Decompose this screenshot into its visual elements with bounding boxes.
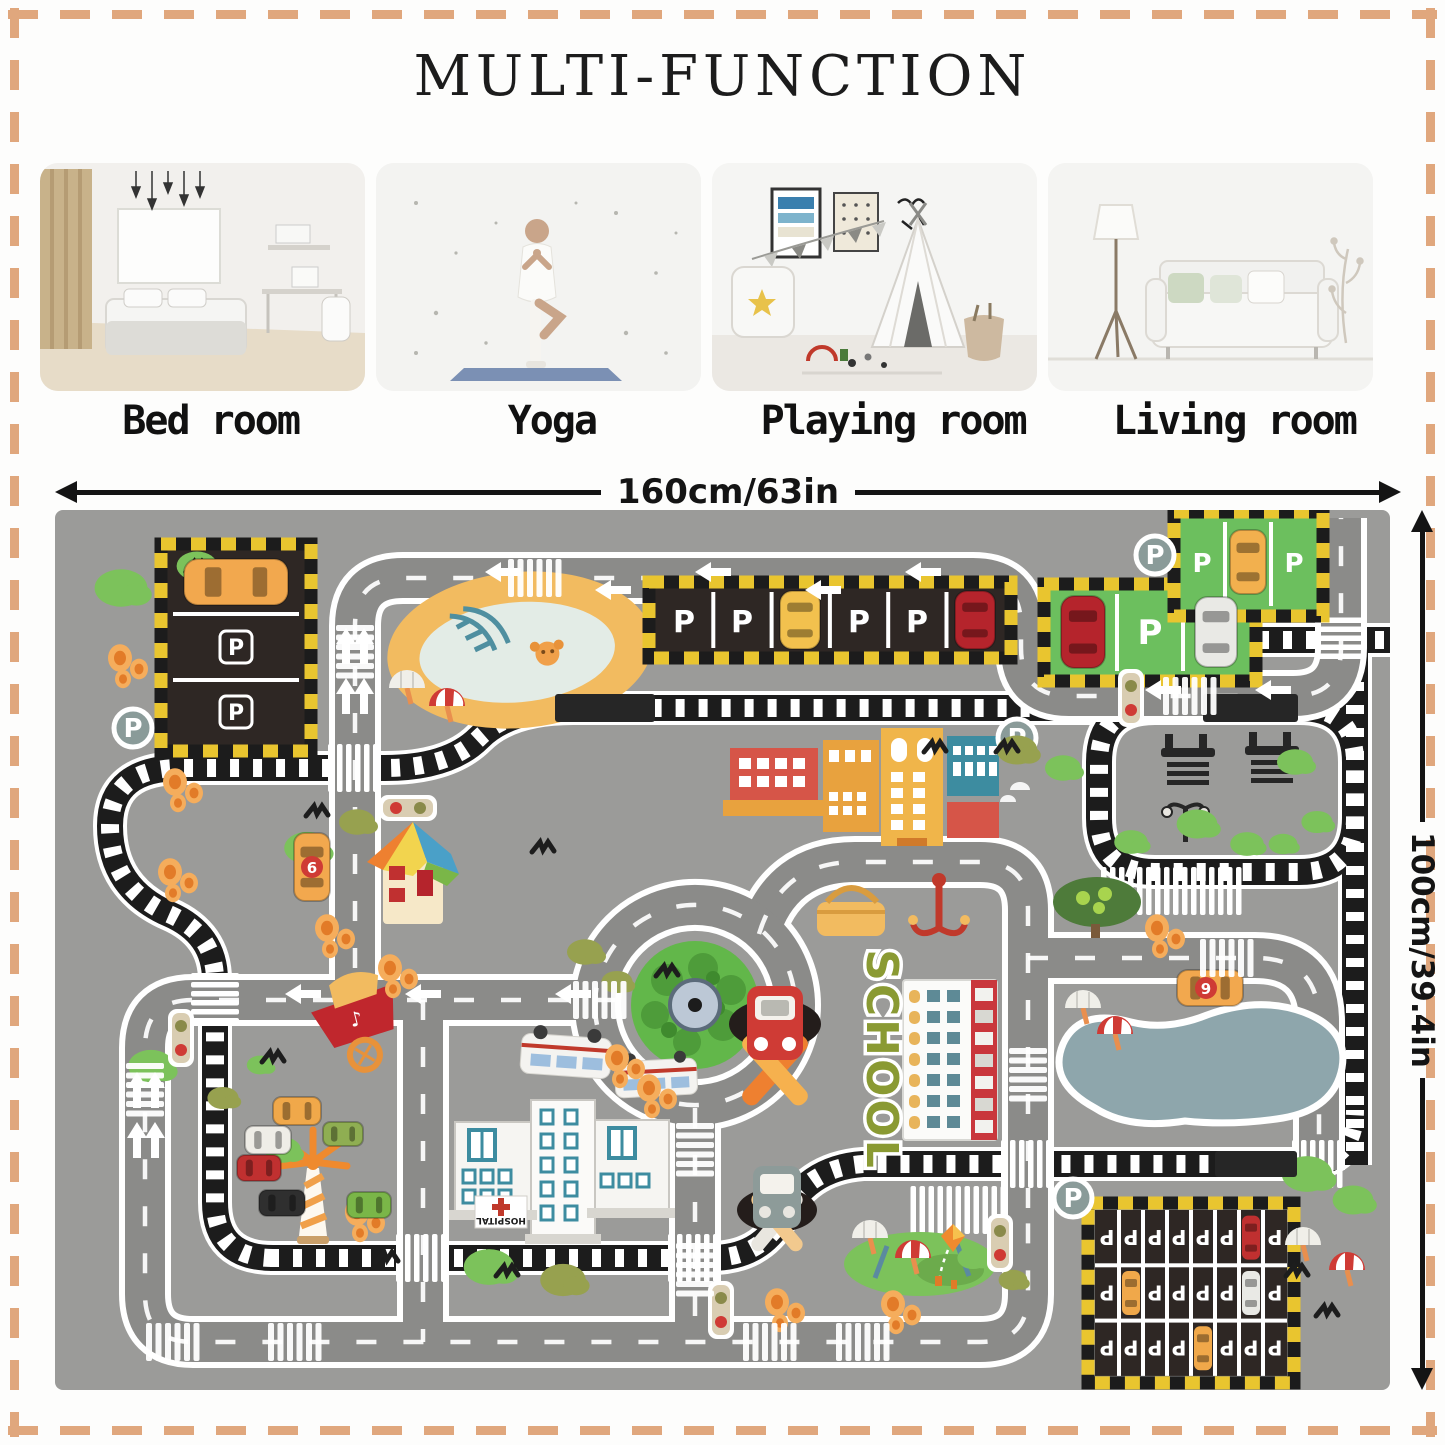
svg-text:P: P (1268, 1336, 1283, 1360)
svg-text:P: P (1148, 1280, 1163, 1304)
width-value: 160cm/63in (617, 472, 839, 512)
svg-text:P: P (1145, 541, 1164, 571)
photo-playing-room (712, 163, 1037, 391)
svg-text:P: P (1100, 1280, 1115, 1304)
room-labels: Bed room Yoga Playing room Living room (40, 398, 1405, 444)
playing-room-scene (712, 163, 1037, 391)
svg-text:P: P (1172, 1225, 1187, 1249)
dimension-height: 100cm/39.4in (1401, 510, 1443, 1390)
svg-text:P: P (1124, 1225, 1139, 1249)
yoga-mat (450, 368, 622, 381)
svg-text:P: P (1063, 1184, 1082, 1214)
label-livingroom: Living room (1064, 398, 1405, 444)
roundabout (631, 941, 759, 1069)
svg-text:P: P (1124, 1336, 1139, 1360)
frame-dash-left (10, 8, 19, 1437)
svg-text:P: P (1196, 1225, 1211, 1249)
svg-text:P: P (1220, 1336, 1235, 1360)
toy-car (780, 591, 820, 649)
svg-text:P: P (1100, 1225, 1115, 1249)
train-car (1215, 1151, 1297, 1177)
svg-text:P: P (1284, 549, 1303, 579)
parking-garage: PPPPPPPPPPPPPPPPPPPPPPPP (1088, 1203, 1294, 1383)
room-photos (40, 163, 1405, 391)
height-value: 100cm/39.4in (1404, 822, 1440, 1078)
traffic-light (1118, 669, 1144, 727)
arrow-left-icon (55, 481, 77, 503)
armchair (732, 267, 794, 337)
train-car (1203, 694, 1298, 722)
play-mat: HOSPITAL (55, 510, 1390, 1390)
toy-car (245, 1126, 291, 1154)
toy-car (184, 559, 288, 605)
building-teal (947, 736, 999, 796)
label-playingroom: Playing room (723, 398, 1064, 444)
svg-text:P: P (848, 605, 870, 640)
photo-living-room (1048, 163, 1373, 391)
arrow-down-icon (1411, 1368, 1433, 1390)
svg-text:P: P (1268, 1280, 1283, 1304)
svg-text:P: P (1192, 549, 1211, 579)
svg-text:P: P (906, 605, 928, 640)
traffic-light (987, 1214, 1013, 1272)
product-image-page: MULTI-FUNCTION (0, 0, 1445, 1445)
svg-text:P: P (1172, 1280, 1187, 1304)
toy-car (347, 1192, 391, 1218)
arrow-up-icon (1411, 510, 1433, 532)
living-room-scene (1048, 163, 1373, 391)
bed (106, 289, 246, 355)
photo-bedroom (40, 163, 365, 391)
parked-car (1194, 1326, 1212, 1370)
page-title: MULTI-FUNCTION (0, 44, 1445, 109)
svg-text:P: P (1268, 1225, 1283, 1249)
hospital-sign: HOSPITAL (475, 1196, 527, 1228)
svg-text:9: 9 (1201, 980, 1211, 998)
frame-dash-top (8, 10, 1437, 19)
dimension-width: 160cm/63in (55, 472, 1401, 512)
svg-text:P: P (1196, 1280, 1211, 1304)
frame-dash-bottom (8, 1426, 1437, 1435)
traffic-light (708, 1281, 734, 1339)
svg-text:P: P (228, 701, 244, 726)
school-building: SCHOOL (856, 949, 997, 1171)
sofa (1146, 261, 1338, 359)
svg-text:P: P (673, 605, 695, 640)
toy-car (259, 1190, 305, 1216)
race-car-number: 9 (1195, 977, 1217, 999)
parked-car (1122, 1271, 1140, 1315)
toy-car (323, 1122, 363, 1146)
parked-car (1242, 1216, 1260, 1260)
svg-text:P: P (228, 636, 244, 661)
parked-car (1242, 1271, 1260, 1315)
traffic-light (168, 1009, 194, 1067)
photo-yoga (376, 163, 701, 391)
svg-text:P: P (1244, 1336, 1259, 1360)
label-bedroom: Bed room (40, 398, 381, 444)
svg-text:P: P (1148, 1225, 1163, 1249)
svg-text:P: P (1220, 1280, 1235, 1304)
toy-car (237, 1155, 281, 1181)
toy-car (1195, 597, 1237, 667)
toy-car (1061, 596, 1105, 668)
svg-text:P: P (1172, 1336, 1187, 1360)
label-yoga: Yoga (381, 398, 722, 444)
svg-text:P: P (123, 714, 142, 744)
toy-car (1230, 530, 1266, 594)
svg-text:P: P (1220, 1225, 1235, 1249)
building-red (723, 748, 825, 816)
traffic-light (379, 795, 437, 821)
svg-text:P: P (1138, 613, 1163, 653)
svg-text:P: P (1148, 1336, 1163, 1360)
svg-text:P: P (1100, 1336, 1115, 1360)
parking-sign: P (114, 709, 152, 747)
building-red-block (947, 802, 999, 838)
svg-text:6: 6 (307, 859, 317, 877)
hospital-text: HOSPITAL (476, 1215, 526, 1225)
arrow-right-icon (1379, 481, 1401, 503)
parking-sign: P (1136, 536, 1174, 574)
play-mat-illustration: HOSPITAL (55, 510, 1390, 1390)
school-text: SCHOOL (856, 949, 907, 1171)
yoga-scene (376, 163, 701, 391)
toy-car (955, 591, 995, 649)
train-car (555, 694, 655, 722)
parking-sign: P (1054, 1179, 1092, 1217)
house-car-number: 6 (301, 856, 323, 878)
svg-text:P: P (731, 605, 753, 640)
bedroom-scene (40, 163, 365, 391)
toy-car (273, 1097, 321, 1125)
building-orange (823, 740, 879, 832)
